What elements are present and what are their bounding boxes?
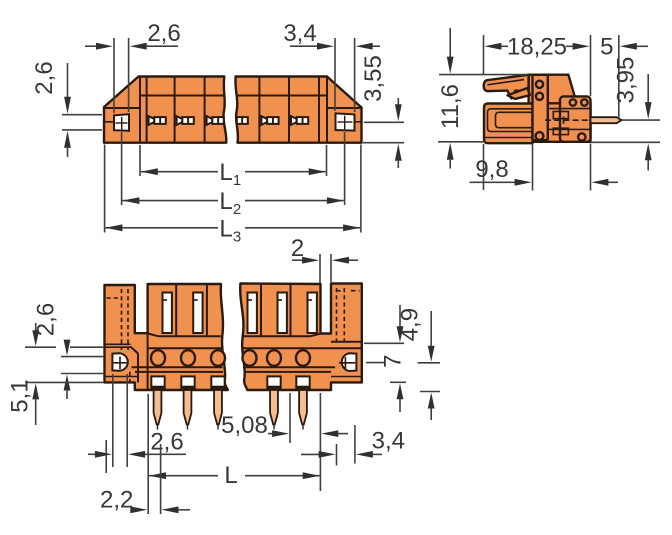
svg-text:11,6: 11,6: [437, 84, 464, 129]
svg-text:2: 2: [233, 201, 241, 218]
svg-text:L: L: [219, 188, 232, 215]
svg-text:1: 1: [233, 172, 241, 189]
svg-text:7: 7: [380, 355, 407, 368]
svg-text:3,4: 3,4: [283, 20, 316, 47]
svg-text:2,2: 2,2: [100, 487, 133, 514]
svg-text:9,8: 9,8: [475, 156, 508, 183]
svg-text:L: L: [219, 215, 232, 242]
svg-text:2,6: 2,6: [147, 20, 180, 47]
svg-text:2: 2: [291, 235, 304, 262]
svg-text:18,25: 18,25: [507, 34, 567, 61]
svg-text:3,95: 3,95: [613, 57, 640, 104]
svg-text:L: L: [219, 159, 232, 186]
svg-text:2,6: 2,6: [31, 61, 58, 94]
svg-text:3: 3: [233, 228, 241, 245]
svg-text:5,1: 5,1: [7, 379, 34, 412]
svg-text:L: L: [224, 462, 237, 489]
svg-text:3,4: 3,4: [372, 428, 405, 455]
svg-text:2,6: 2,6: [150, 429, 183, 456]
svg-text:3,55: 3,55: [360, 55, 387, 102]
svg-text:5: 5: [600, 34, 613, 61]
svg-text:4,9: 4,9: [396, 308, 423, 341]
svg-text:5,08: 5,08: [221, 412, 268, 439]
